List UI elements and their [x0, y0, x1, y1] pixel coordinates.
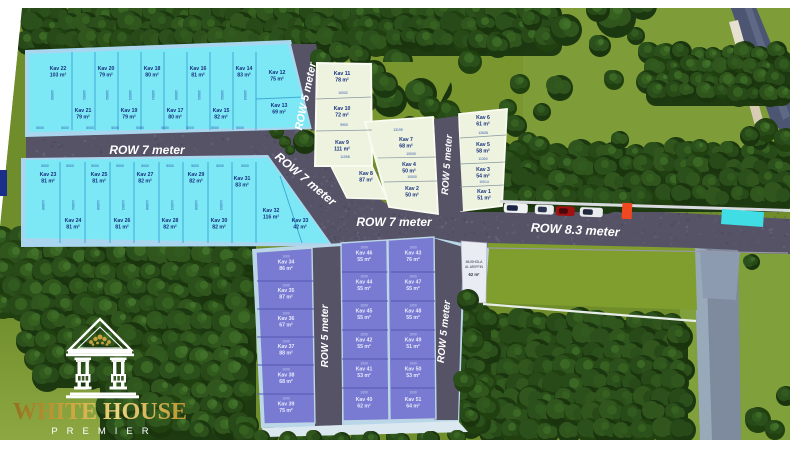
- svg-text:Kav 34: Kav 34: [278, 260, 295, 266]
- svg-text:5000: 5000: [166, 164, 174, 168]
- svg-text:82 m²: 82 m²: [189, 179, 203, 185]
- svg-text:86 m²: 86 m²: [279, 266, 293, 272]
- svg-text:54 m²: 54 m²: [476, 174, 490, 180]
- svg-text:Kav 10: Kav 10: [334, 106, 351, 112]
- svg-text:Kav 6: Kav 6: [476, 115, 490, 121]
- svg-text:1000: 1000: [282, 397, 290, 401]
- svg-text:Kav 8: Kav 8: [359, 171, 373, 177]
- svg-text:Kav 43: Kav 43: [405, 251, 422, 257]
- svg-text:55 m²: 55 m²: [357, 315, 371, 321]
- svg-text:Kav 12: Kav 12: [269, 70, 286, 76]
- svg-text:Kav 9: Kav 9: [335, 140, 349, 146]
- svg-text:53 m²: 53 m²: [357, 373, 371, 379]
- svg-text:82 m²: 82 m²: [138, 179, 152, 185]
- svg-text:14003: 14003: [219, 200, 223, 210]
- svg-text:50 m²: 50 m²: [405, 193, 419, 199]
- svg-text:10000: 10000: [406, 152, 416, 156]
- svg-text:10000: 10000: [50, 90, 54, 100]
- svg-text:1000: 1000: [282, 340, 290, 344]
- svg-text:62 m²: 62 m²: [357, 404, 371, 410]
- svg-text:Kav 38: Kav 38: [278, 373, 295, 379]
- svg-text:Kav 16: Kav 16: [190, 66, 207, 72]
- svg-text:Kav 20: Kav 20: [98, 66, 115, 72]
- svg-text:Kav 18: Kav 18: [144, 66, 161, 72]
- svg-text:Kav 30: Kav 30: [211, 218, 228, 224]
- svg-text:Kav 44: Kav 44: [356, 280, 373, 286]
- svg-text:76 m²: 76 m²: [406, 257, 420, 263]
- svg-text:14006: 14006: [96, 200, 100, 210]
- svg-text:5000: 5000: [91, 164, 99, 168]
- svg-text:Kav 15: Kav 15: [213, 108, 230, 114]
- svg-text:14006: 14006: [194, 200, 198, 210]
- svg-text:10000: 10000: [407, 175, 417, 179]
- svg-text:10003: 10003: [243, 90, 247, 100]
- svg-text:13199: 13199: [393, 128, 403, 132]
- svg-text:14003: 14003: [121, 200, 125, 210]
- svg-text:67 m²: 67 m²: [279, 323, 293, 329]
- svg-text:79 m²: 79 m²: [99, 73, 113, 79]
- svg-text:Kav 14: Kav 14: [236, 66, 253, 72]
- svg-text:68 m²: 68 m²: [399, 144, 413, 150]
- svg-text:9900: 9900: [340, 123, 348, 127]
- svg-text:10002: 10002: [105, 90, 109, 100]
- svg-text:55 m²: 55 m²: [357, 344, 371, 350]
- svg-text:82 m²: 82 m²: [214, 115, 228, 121]
- svg-text:5000: 5000: [236, 126, 244, 130]
- svg-text:82 m²: 82 m²: [163, 225, 177, 231]
- svg-text:64 m²: 64 m²: [406, 404, 420, 410]
- svg-text:1000: 1000: [409, 246, 417, 250]
- svg-text:Kav 33: Kav 33: [292, 218, 309, 224]
- svg-text:68 m²: 68 m²: [279, 379, 293, 385]
- svg-text:Kav 21: Kav 21: [75, 108, 92, 114]
- svg-text:51 m²: 51 m²: [477, 196, 491, 202]
- svg-text:AL ARIFFIN: AL ARIFFIN: [465, 265, 484, 269]
- svg-text:Kav 22: Kav 22: [50, 66, 67, 72]
- svg-text:1000: 1000: [360, 275, 368, 279]
- svg-text:1000: 1000: [282, 368, 290, 372]
- svg-text:79 m²: 79 m²: [122, 115, 136, 121]
- svg-text:Kav 35: Kav 35: [278, 288, 295, 294]
- svg-text:Kav 36: Kav 36: [278, 316, 295, 322]
- svg-text:83 m²: 83 m²: [237, 73, 251, 79]
- svg-text:Kav 27: Kav 27: [137, 172, 154, 178]
- svg-text:42 m²: 42 m²: [293, 225, 307, 231]
- svg-text:88 m²: 88 m²: [279, 351, 293, 357]
- svg-text:1000: 1000: [360, 333, 368, 337]
- svg-text:55 m²: 55 m²: [406, 315, 420, 321]
- svg-text:5000: 5000: [211, 126, 219, 130]
- svg-text:Kav 39: Kav 39: [278, 402, 295, 408]
- svg-text:Kav 41: Kav 41: [356, 367, 373, 373]
- svg-text:5000: 5000: [141, 164, 149, 168]
- svg-text:Kav 23: Kav 23: [40, 172, 57, 178]
- svg-text:1000: 1000: [282, 312, 290, 316]
- svg-text:11098: 11098: [340, 155, 349, 159]
- svg-text:82 m²: 82 m²: [212, 225, 226, 231]
- svg-text:ROW 7 meter: ROW 7 meter: [356, 215, 433, 229]
- svg-text:62 m²: 62 m²: [469, 272, 481, 277]
- svg-text:80 m²: 80 m²: [145, 73, 159, 79]
- svg-text:80 m²: 80 m²: [168, 115, 182, 121]
- svg-text:53 m²: 53 m²: [406, 373, 420, 379]
- svg-text:10004: 10004: [151, 90, 155, 100]
- svg-text:Kav 26: Kav 26: [114, 218, 131, 224]
- svg-text:5000: 5000: [61, 126, 69, 130]
- svg-text:55 m²: 55 m²: [357, 286, 371, 292]
- svg-text:81 m²: 81 m²: [92, 179, 106, 185]
- svg-text:MUSHOLA: MUSHOLA: [466, 260, 484, 264]
- svg-text:10001: 10001: [82, 90, 86, 100]
- svg-text:5000: 5000: [111, 126, 119, 130]
- svg-text:1000: 1000: [409, 391, 417, 395]
- svg-text:103 m²: 103 m²: [50, 73, 67, 79]
- svg-text:51 m²: 51 m²: [406, 344, 420, 350]
- svg-text:87 m²: 87 m²: [279, 295, 293, 301]
- svg-text:Kav 19: Kav 19: [121, 108, 138, 114]
- svg-text:79 m²: 79 m²: [76, 115, 90, 121]
- svg-text:5000: 5000: [216, 164, 224, 168]
- svg-text:1000: 1000: [360, 304, 368, 308]
- svg-text:Kav 29: Kav 29: [188, 172, 205, 178]
- svg-text:Kav 17: Kav 17: [167, 108, 184, 114]
- svg-text:Kav 40: Kav 40: [356, 397, 373, 403]
- svg-text:14006: 14006: [145, 200, 149, 210]
- svg-text:Kav 50: Kav 50: [405, 367, 422, 373]
- svg-text:81 m²: 81 m²: [66, 225, 80, 231]
- svg-text:Kav 48: Kav 48: [405, 309, 422, 315]
- svg-text:ROW 5 meter: ROW 5 meter: [320, 303, 331, 367]
- svg-text:81 m²: 81 m²: [115, 225, 129, 231]
- svg-text:PREMIER: PREMIER: [51, 426, 157, 437]
- svg-text:75 m²: 75 m²: [270, 77, 284, 83]
- svg-text:5000: 5000: [41, 164, 49, 168]
- svg-text:10003: 10003: [128, 90, 132, 100]
- svg-text:Kav 4: Kav 4: [402, 162, 416, 168]
- svg-text:5000: 5000: [66, 164, 74, 168]
- svg-text:14002: 14002: [71, 200, 75, 210]
- svg-text:58 m²: 58 m²: [476, 149, 490, 155]
- svg-text:55 m²: 55 m²: [406, 286, 420, 292]
- svg-text:1000: 1000: [360, 246, 368, 250]
- svg-text:10014: 10014: [479, 180, 489, 184]
- svg-text:1000: 1000: [409, 275, 417, 279]
- svg-text:Kav 25: Kav 25: [91, 172, 108, 178]
- svg-text:81 m²: 81 m²: [41, 179, 55, 185]
- svg-text:5000: 5000: [241, 164, 249, 168]
- svg-text:111 m²: 111 m²: [334, 147, 350, 153]
- svg-text:10001: 10001: [197, 90, 201, 100]
- svg-text:72 m²: 72 m²: [335, 113, 349, 119]
- svg-text:1000: 1000: [409, 304, 417, 308]
- svg-text:10000: 10000: [174, 90, 178, 100]
- svg-text:WHITE HOUSE: WHITE HOUSE: [13, 399, 187, 425]
- svg-text:87 m²: 87 m²: [359, 178, 373, 184]
- svg-text:Kav 42: Kav 42: [356, 338, 373, 344]
- svg-text:Kav 32: Kav 32: [263, 208, 280, 214]
- svg-text:Kav 2: Kav 2: [405, 186, 419, 192]
- svg-text:5000: 5000: [36, 126, 44, 130]
- svg-text:1000: 1000: [360, 391, 368, 395]
- svg-text:14003: 14003: [170, 200, 174, 210]
- svg-text:78 m²: 78 m²: [335, 78, 349, 84]
- svg-text:Kav 51: Kav 51: [405, 397, 422, 403]
- svg-text:5000: 5000: [116, 164, 124, 168]
- svg-text:Kav 49: Kav 49: [405, 338, 422, 344]
- svg-text:81 m²: 81 m²: [191, 73, 205, 79]
- svg-text:Kav 11: Kav 11: [334, 71, 351, 77]
- svg-text:Kav 47: Kav 47: [405, 280, 422, 286]
- svg-text:12608: 12608: [478, 131, 488, 135]
- svg-text:5000: 5000: [136, 126, 144, 130]
- svg-text:83 m²: 83 m²: [235, 183, 249, 189]
- svg-text:1000: 1000: [409, 333, 417, 337]
- svg-text:10002: 10002: [220, 90, 224, 100]
- svg-text:Kav 5: Kav 5: [476, 142, 490, 148]
- svg-text:69 m²: 69 m²: [272, 110, 286, 116]
- svg-text:ROW 7 meter: ROW 7 meter: [109, 143, 186, 157]
- svg-text:5000: 5000: [191, 164, 199, 168]
- svg-text:55 m²: 55 m²: [357, 257, 371, 263]
- svg-text:Kav 37: Kav 37: [278, 344, 295, 350]
- svg-text:14000: 14000: [41, 200, 45, 210]
- svg-text:Kav 28: Kav 28: [162, 218, 179, 224]
- svg-text:Kav 3: Kav 3: [476, 167, 490, 173]
- svg-text:5000: 5000: [86, 126, 94, 130]
- svg-text:1000: 1000: [360, 362, 368, 366]
- svg-text:5000: 5000: [161, 126, 169, 130]
- svg-text:1000: 1000: [409, 362, 417, 366]
- svg-text:Kav 31: Kav 31: [234, 176, 251, 182]
- svg-text:10002: 10002: [338, 91, 348, 95]
- svg-text:11300: 11300: [478, 157, 487, 161]
- svg-text:Kav 45: Kav 45: [356, 309, 373, 315]
- svg-text:75 m²: 75 m²: [279, 408, 293, 414]
- svg-text:116 m²: 116 m²: [263, 215, 279, 221]
- svg-text:Kav 13: Kav 13: [271, 103, 288, 109]
- svg-text:Kav 24: Kav 24: [65, 218, 82, 224]
- svg-text:Kav 1: Kav 1: [477, 189, 491, 195]
- svg-text:50 m²: 50 m²: [402, 169, 416, 175]
- svg-text:1000: 1000: [282, 255, 290, 259]
- svg-text:Kav 46: Kav 46: [356, 251, 373, 257]
- svg-text:Kav 7: Kav 7: [399, 137, 413, 143]
- svg-text:5000: 5000: [186, 126, 194, 130]
- svg-text:1000: 1000: [282, 284, 290, 288]
- svg-text:61 m²: 61 m²: [476, 122, 490, 128]
